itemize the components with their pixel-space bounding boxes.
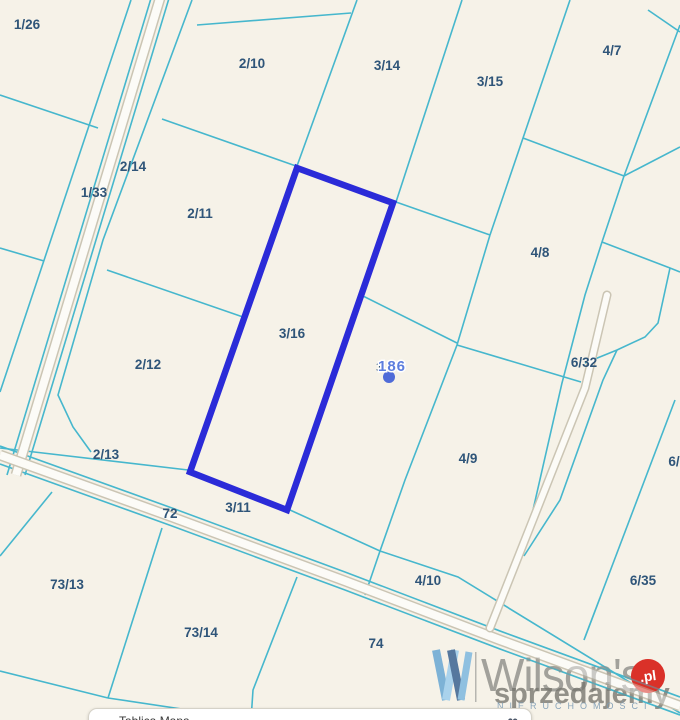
linked-rings-icon[interactable]: ∞ bbox=[507, 712, 520, 720]
parcel-label-3-16: 3/16 bbox=[279, 326, 306, 341]
logo-divider bbox=[475, 652, 477, 702]
parcel-label-4-7: 4/7 bbox=[603, 43, 622, 58]
parcel-label-73-14: 73/14 bbox=[184, 625, 218, 640]
marker-label: 186 bbox=[378, 358, 406, 375]
road-right bbox=[490, 295, 607, 628]
map-control-bar[interactable]: Tablica Mapa ∞ bbox=[88, 708, 532, 720]
parcel-label-6-: 6/ bbox=[668, 454, 680, 469]
map-canvas[interactable]: Wilson's sprzedajemy NIERUCHOMOŚCI .pl 1… bbox=[0, 0, 680, 720]
cadastral-map[interactable]: Wilson's sprzedajemy NIERUCHOMOŚCI .pl 1… bbox=[0, 0, 680, 720]
wilsons-logo-icon bbox=[436, 650, 469, 700]
parcel-label-72: 72 bbox=[162, 506, 177, 521]
parcel-label-2-13: 2/13 bbox=[93, 447, 120, 462]
parcel-label-4-8: 4/8 bbox=[531, 245, 550, 260]
bar-partial-text: Tablica Mapa bbox=[119, 714, 190, 720]
parcel-label-74: 74 bbox=[368, 636, 384, 651]
parcel-label-73-13: 73/13 bbox=[50, 577, 84, 592]
parcel-label-3-15: 3/15 bbox=[477, 74, 504, 89]
parcel-label-2-10: 2/10 bbox=[239, 56, 265, 71]
parcel-label-6-32: 6/32 bbox=[571, 355, 597, 370]
parcel-label-2-11: 2/11 bbox=[187, 206, 213, 221]
parcel-label-1-26: 1/26 bbox=[14, 17, 41, 32]
parcel-label-6-35: 6/35 bbox=[630, 573, 657, 588]
road-left bbox=[16, 0, 161, 475]
parcel-label-2-14: 2/14 bbox=[120, 159, 147, 174]
parcel-label-1-33: 1/33 bbox=[81, 185, 108, 200]
marker-186[interactable]: 3 186 bbox=[376, 358, 406, 383]
parcel-label-3-11: 3/11 bbox=[225, 500, 251, 515]
parcel-label-2-12: 2/12 bbox=[135, 357, 161, 372]
parcel-label-4-9: 4/9 bbox=[459, 451, 478, 466]
parcel-label-3-14: 3/14 bbox=[374, 58, 401, 73]
parcel-label-4-10: 4/10 bbox=[415, 573, 441, 588]
